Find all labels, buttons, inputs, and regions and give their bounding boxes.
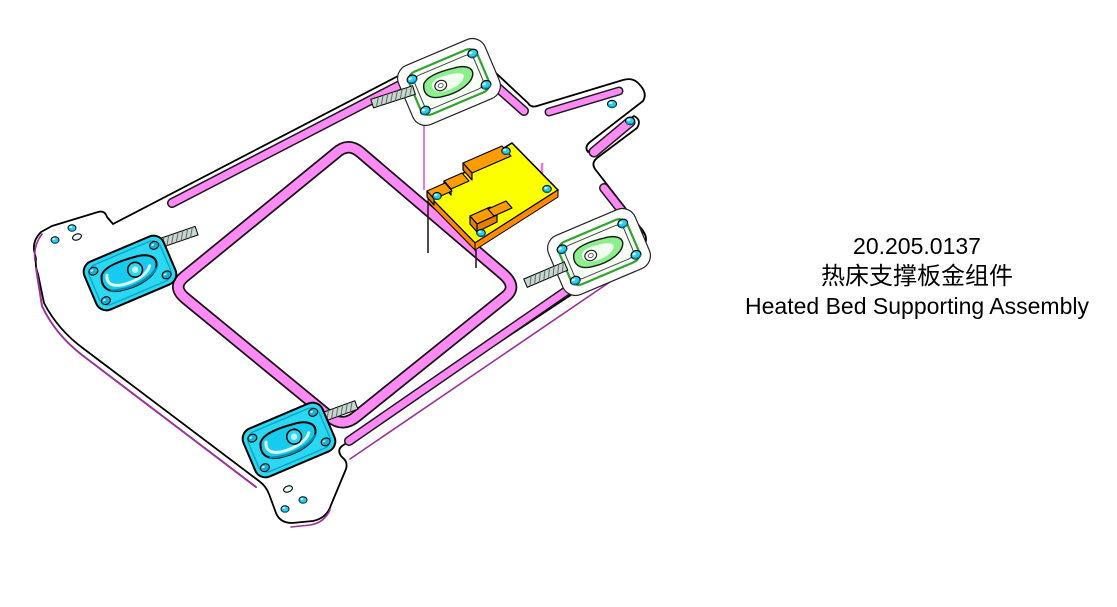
screw-icon: [51, 237, 59, 244]
screw-icon: [281, 506, 289, 513]
part-label: 20.205.0137 热床支撑板金组件 Heated Bed Supporti…: [702, 232, 1117, 321]
part-name-en: Heated Bed Supporting Assembly: [702, 292, 1117, 321]
cad-sheet: 20.205.0137 热床支撑板金组件 Heated Bed Supporti…: [0, 0, 1117, 607]
part-number: 20.205.0137: [702, 232, 1117, 261]
screw-icon: [299, 497, 307, 504]
screw-icon: [608, 100, 617, 107]
screw-icon: [68, 225, 76, 232]
part-name-zh: 热床支撑板金组件: [702, 261, 1117, 292]
screw-icon: [502, 148, 511, 155]
screw-icon: [626, 117, 635, 124]
screw-icon: [477, 230, 486, 237]
screw-icon: [543, 186, 552, 193]
screw-icon: [433, 193, 442, 200]
